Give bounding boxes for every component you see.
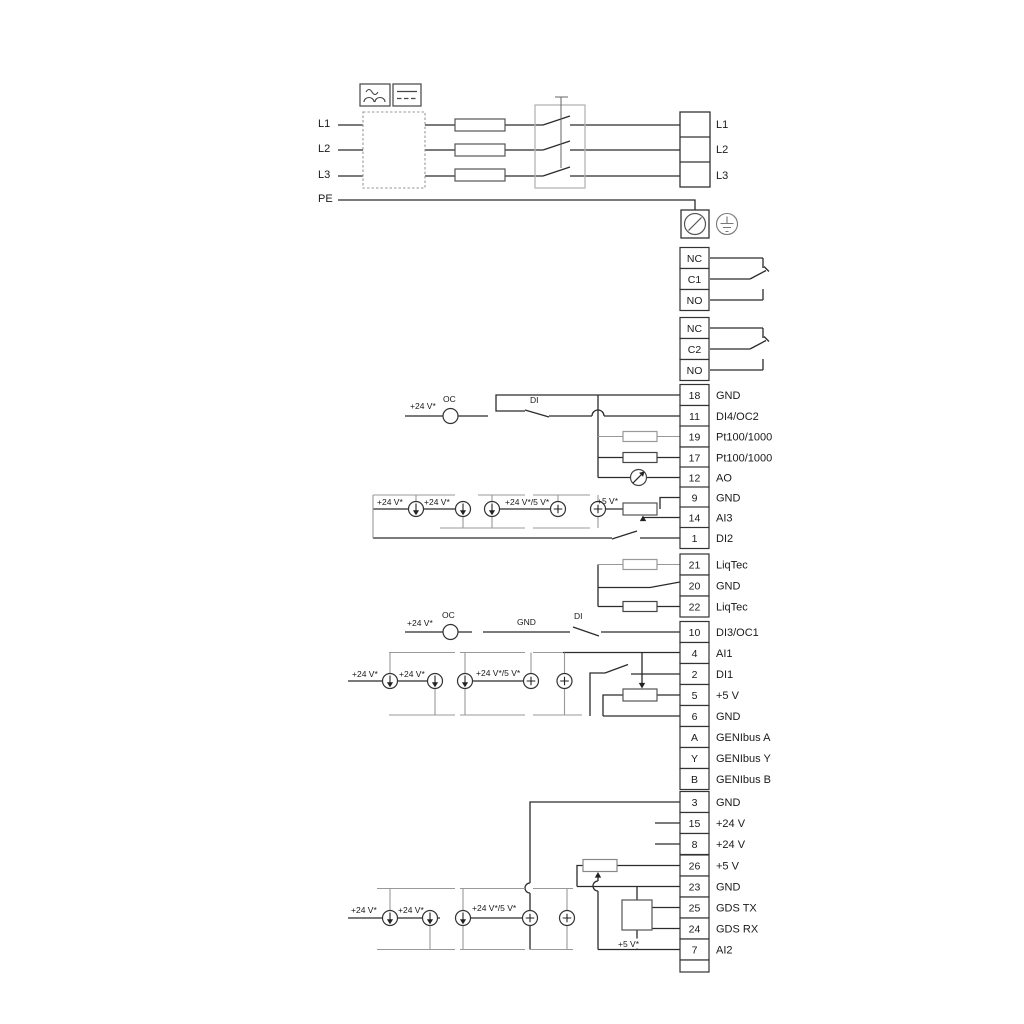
terminal-label: GDS RX — [716, 923, 759, 935]
dc-symbol-box — [393, 84, 421, 106]
resistor-pt100-17 — [623, 453, 657, 463]
terminal-number: 22 — [689, 601, 701, 613]
annotation-24v-5v: +24 V*/5 V* — [472, 903, 517, 913]
terminal-label: DI1 — [716, 669, 733, 681]
terminal-number: 5 — [692, 690, 698, 702]
annotation-24v: +24 V* — [377, 497, 403, 507]
wiring-diagram-page: 18GND11DI4/OC219Pt100/100017Pt100/100012… — [0, 0, 1024, 1024]
terminal-number: Y — [691, 753, 698, 765]
terminal-label: DI3/OC1 — [716, 627, 759, 639]
potentiometer-ai3 — [623, 503, 657, 515]
fuse-l2 — [455, 144, 505, 156]
annotation-5v: +5 V* — [597, 496, 619, 506]
power-output-label-l2: L2 — [716, 144, 728, 156]
potentiometer-ai2 — [583, 860, 617, 872]
open-collector-symbol — [443, 409, 458, 424]
terminal-number: 1 — [692, 533, 698, 545]
terminal-number: 3 — [692, 797, 698, 809]
terminal-label: +24 V — [716, 839, 746, 851]
terminal-label: GND — [716, 881, 741, 893]
wiring-diagram-canvas: 18GND11DI4/OC219Pt100/100017Pt100/100012… — [0, 0, 1024, 1024]
disconnect-switch-linkage — [555, 97, 568, 168]
terminal-label: GENIbus B — [716, 774, 771, 786]
power-input-label-l3: L3 — [318, 169, 330, 181]
power-output-label-l1: L1 — [716, 119, 728, 131]
annotation-gnd: GND — [517, 617, 536, 627]
terminal-strip-extension — [680, 960, 709, 972]
power-output-label-l3: L3 — [716, 170, 728, 182]
power-input-label-l1: L1 — [318, 118, 330, 130]
annotation-24v: +24 V* — [399, 669, 425, 679]
terminal-label: DI4/OC2 — [716, 411, 759, 423]
annotation-oc: OC — [442, 610, 455, 620]
annotation-24v: +24 V* — [351, 905, 377, 915]
terminal-number: 14 — [689, 512, 701, 524]
terminal-number: 2 — [692, 669, 698, 681]
labels: L1 L2 L3 PE L1 L2 L3 +24 V* OC DI +24 V*… — [318, 118, 728, 949]
terminal-label: Pt100/1000 — [716, 431, 772, 443]
relay-cell-label: NC — [687, 253, 703, 265]
resistor-liqtec-21 — [623, 560, 657, 570]
power-input-label-pe: PE — [318, 193, 333, 205]
wiper-arrow-ai1 — [639, 683, 645, 689]
annotation-5v: +5 V* — [618, 939, 640, 949]
relay-cell-label: NC — [687, 323, 703, 335]
terminal-number: 21 — [689, 559, 701, 571]
terminal-label: AI2 — [716, 944, 733, 956]
terminal-label: GND — [716, 390, 741, 402]
relay-wiring — [710, 258, 769, 370]
open-collector-symbol — [443, 625, 458, 640]
mains-filter-box — [363, 112, 425, 188]
terminal-label: GND — [716, 797, 741, 809]
terminal-label: GENIbus A — [716, 732, 771, 744]
terminal-label: AI3 — [716, 512, 733, 524]
terminal-label: AI1 — [716, 648, 733, 660]
terminal-label: +5 V — [716, 690, 740, 702]
terminal-number: 8 — [692, 839, 698, 851]
terminal-strip: 18GND11DI4/OC219Pt100/100017Pt100/100012… — [680, 248, 772, 961]
terminal-number: 26 — [689, 860, 701, 872]
terminal-number: 19 — [689, 431, 701, 443]
terminal-number: 12 — [689, 472, 701, 484]
terminal-label: AO — [716, 472, 732, 484]
fuse-l3 — [455, 169, 505, 181]
source-symbols — [383, 409, 606, 926]
annotation-24v: +24 V* — [407, 618, 433, 628]
terminal-number: 4 — [692, 648, 698, 660]
power-input-label-l2: L2 — [318, 143, 330, 155]
terminal-label: +24 V — [716, 818, 746, 830]
terminal-number: 23 — [689, 881, 701, 893]
terminal-label: GND — [716, 492, 741, 504]
power-terminal-block — [680, 112, 710, 187]
terminal-number: A — [691, 732, 698, 744]
terminal-label: GND — [716, 711, 741, 723]
annotation-24v-5v: +24 V*/5 V* — [476, 668, 521, 678]
terminal-number: 7 — [692, 944, 698, 956]
annotation-24v-5v: +24 V*/5 V* — [505, 497, 550, 507]
terminal-label: GDS TX — [716, 902, 757, 914]
relay-cell-label: NO — [687, 295, 703, 307]
resistor-pt100-19 — [623, 432, 657, 442]
relay-cell-label: C1 — [688, 274, 702, 286]
annotation-di: DI — [530, 395, 539, 405]
relay-cell-label: C2 — [688, 344, 702, 356]
fuse-l1 — [455, 119, 505, 131]
terminal-label: +5 V — [716, 860, 740, 872]
terminal-number: 20 — [689, 580, 701, 592]
terminal-number: 15 — [689, 818, 701, 830]
terminal-label: Pt100/1000 — [716, 452, 772, 464]
terminal-number: 17 — [689, 452, 701, 464]
annotation-di: DI — [574, 611, 583, 621]
terminal-label: LiqTec — [716, 601, 748, 613]
resistor-liqtec-22 — [623, 602, 657, 612]
terminal-label: DI2 — [716, 533, 733, 545]
terminal-number: 11 — [689, 411, 700, 423]
terminal-number: 24 — [689, 923, 701, 935]
mains-wiring — [338, 116, 695, 210]
terminal-number: 9 — [692, 492, 698, 504]
gds-sensor-box — [622, 900, 652, 930]
annotation-24v: +24 V* — [424, 497, 450, 507]
annotation-oc: OC — [443, 394, 456, 404]
annotation-24v: +24 V* — [398, 905, 424, 915]
terminal-label: LiqTec — [716, 559, 748, 571]
terminal-number: 25 — [689, 902, 701, 914]
terminal-label: GND — [716, 580, 741, 592]
terminal-number: B — [691, 774, 698, 786]
terminal-number: 10 — [689, 627, 701, 639]
potentiometer-ai1 — [623, 689, 657, 701]
annotation-24v: +24 V* — [410, 401, 436, 411]
wiper-arrow-ai3 — [640, 516, 646, 522]
annotation-24v: +24 V* — [352, 669, 378, 679]
terminal-label: GENIbus Y — [716, 753, 771, 765]
wiper-arrow-ai2 — [595, 872, 601, 878]
relay-cell-label: NO — [687, 365, 703, 377]
terminal-number: 18 — [689, 390, 701, 402]
terminal-number: 6 — [692, 711, 698, 723]
io-wiring-mid — [348, 653, 680, 717]
